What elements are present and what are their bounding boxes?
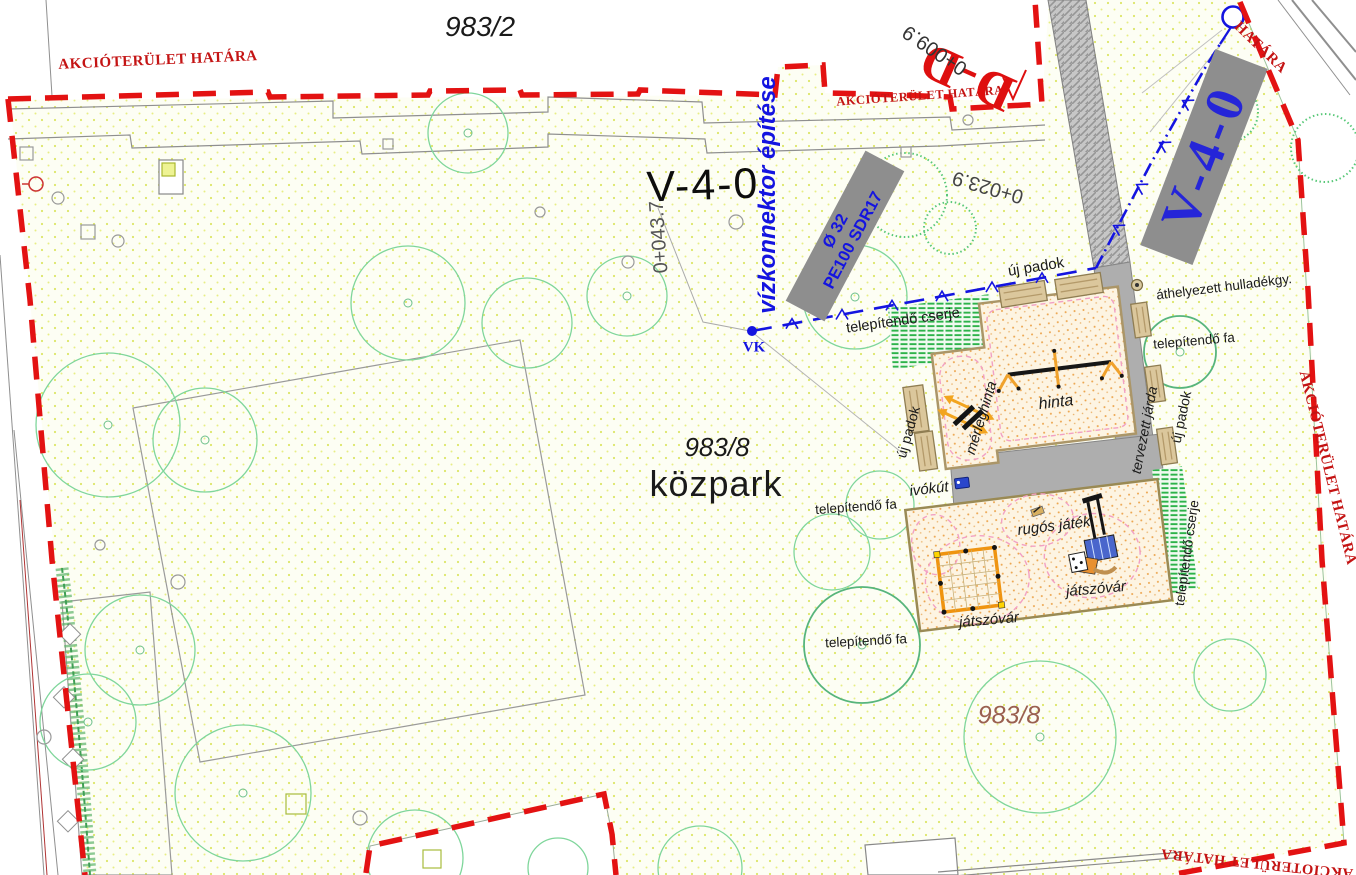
park-name-label: közpark bbox=[649, 466, 782, 502]
water-node-vk bbox=[747, 326, 757, 336]
chainage-label-3: 0+043.7 bbox=[646, 200, 671, 274]
waste-bin-icon bbox=[1132, 280, 1143, 291]
site-plan: 983/2 AKCIÓTERÜLET HATÁRA AKCIÓTERÜLET H… bbox=[0, 0, 1356, 875]
drinking-fountain-icon bbox=[954, 477, 969, 489]
parcel-label-983-2: 983/2 bbox=[445, 13, 515, 41]
parcel-label-983-8: 983/8 bbox=[684, 434, 749, 460]
water-node-label: VK bbox=[743, 341, 766, 356]
plan-drawing bbox=[0, 0, 1356, 875]
parcel-label-983-8-bottom: 983/8 bbox=[978, 704, 1041, 729]
